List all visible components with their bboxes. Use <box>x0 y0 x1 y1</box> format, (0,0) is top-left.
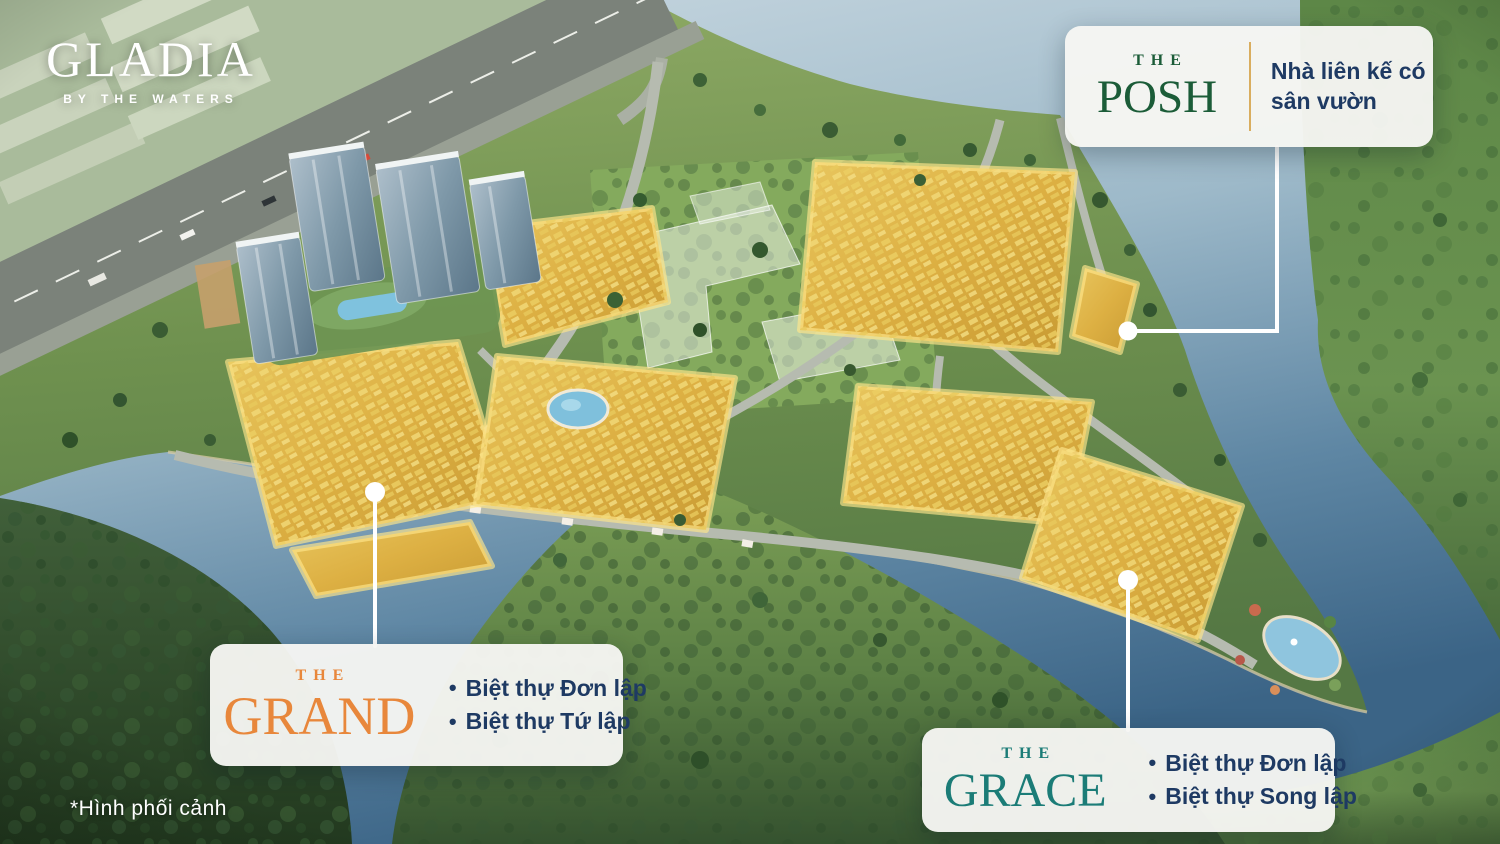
brand-logo: GLADIA BY THE WATERS <box>46 34 256 106</box>
grand-prefix: THE <box>210 668 429 684</box>
grace-bullet-2: • Biệt thự Song lập <box>1149 780 1357 813</box>
grace-connector-dot <box>1118 570 1138 590</box>
grand-bullets: • Biệt thự Đơn lập • Biệt thự Tứ lập <box>429 672 647 739</box>
callout-card-grand: THE GRAND • Biệt thự Đơn lập • Biệt thự … <box>210 644 623 766</box>
posh-name: POSH <box>1065 74 1249 121</box>
grand-name: GRAND <box>210 689 429 743</box>
bullet-icon: • <box>1149 781 1157 813</box>
bullet-icon: • <box>1149 747 1157 779</box>
grace-prefix: THE <box>922 746 1129 762</box>
grand-bullet-1-label: Biệt thự Đơn lập <box>466 672 647 705</box>
posh-description: Nhà liên kế có sân vườn <box>1251 57 1433 117</box>
grand-bullet-2: • Biệt thự Tứ lập <box>449 705 647 738</box>
grace-bullet-1: • Biệt thự Đơn lập <box>1149 747 1357 780</box>
grand-bullet-1: • Biệt thự Đơn lập <box>449 672 647 705</box>
grace-name-block: THE GRACE <box>922 746 1129 815</box>
posh-name-block: THE POSH <box>1065 53 1249 121</box>
grand-bullet-2-label: Biệt thự Tứ lập <box>466 705 631 738</box>
grace-bullet-2-label: Biệt thự Song lập <box>1165 780 1357 813</box>
callout-card-posh: THE POSH Nhà liên kế có sân vườn <box>1065 26 1433 147</box>
bullet-icon: • <box>449 672 457 704</box>
grand-name-block: THE GRAND <box>210 668 429 743</box>
posh-prefix: THE <box>1065 53 1249 69</box>
brand-tagline: BY THE WATERS <box>46 92 256 106</box>
callout-card-grace: THE GRACE • Biệt thự Đơn lập • Biệt thự … <box>922 728 1335 832</box>
grace-bullet-1-label: Biệt thự Đơn lập <box>1165 747 1346 780</box>
masterplan-canvas: GLADIA BY THE WATERS THE POSH Nhà liên k… <box>0 0 1500 844</box>
render-disclaimer: *Hình phối cảnh <box>70 797 227 821</box>
grand-connector-dot <box>365 482 385 502</box>
grace-name: GRACE <box>922 767 1129 815</box>
grace-bullets: • Biệt thự Đơn lập • Biệt thự Song lập <box>1129 747 1357 814</box>
brand-name: GLADIA <box>46 34 256 84</box>
posh-connector-dot <box>1119 322 1138 341</box>
bullet-icon: • <box>449 706 457 738</box>
